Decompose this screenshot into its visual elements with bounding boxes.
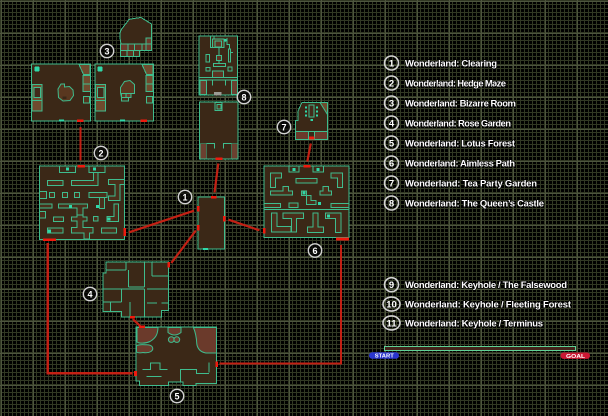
svg-text:9: 9 — [389, 280, 394, 291]
svg-text:Wonderland: Aimless Path: Wonderland: Aimless Path — [405, 158, 515, 169]
svg-text:Wonderland: Hedge Maze: Wonderland: Hedge Maze — [405, 78, 506, 89]
svg-text:3: 3 — [104, 47, 109, 57]
svg-text:Wonderland: Clearing: Wonderland: Clearing — [405, 58, 497, 69]
svg-text:Wonderland: Bizarre Room: Wonderland: Bizarre Room — [405, 98, 516, 109]
svg-text:START: START — [375, 354, 395, 360]
svg-text:8: 8 — [389, 198, 394, 209]
svg-text:1: 1 — [389, 58, 395, 69]
svg-text:6: 6 — [389, 158, 394, 169]
svg-text:Wonderland: Keyhole / Terminus: Wonderland: Keyhole / Terminus — [405, 318, 543, 329]
svg-text:Wonderland: Rose Garden: Wonderland: Rose Garden — [405, 118, 511, 129]
svg-text:Wonderland: Lotus Forest: Wonderland: Lotus Forest — [405, 138, 516, 149]
svg-text:Wonderland: The Queen’s Castle: Wonderland: The Queen’s Castle — [405, 198, 544, 209]
svg-text:1: 1 — [182, 193, 187, 203]
svg-text:Wonderland: Keyhole / The Fals: Wonderland: Keyhole / The Falsewood — [405, 280, 567, 291]
svg-text:3: 3 — [389, 98, 394, 109]
svg-text:2: 2 — [98, 149, 103, 159]
svg-text:5: 5 — [174, 392, 179, 402]
svg-text:4: 4 — [389, 118, 395, 129]
svg-text:2: 2 — [389, 78, 394, 89]
svg-text:7: 7 — [281, 123, 286, 133]
svg-text:10: 10 — [386, 300, 397, 311]
svg-text:GOAL: GOAL — [566, 354, 586, 360]
svg-text:11: 11 — [386, 318, 397, 329]
svg-text:5: 5 — [389, 138, 395, 149]
svg-text:4: 4 — [87, 290, 92, 300]
svg-text:Wonderland: Keyhole / Fleeting: Wonderland: Keyhole / Fleeting Forest — [405, 300, 572, 311]
svg-text:Wonderland: Tea Party Garden: Wonderland: Tea Party Garden — [405, 178, 537, 189]
svg-text:8: 8 — [241, 93, 246, 103]
svg-text:7: 7 — [389, 178, 394, 189]
svg-text:6: 6 — [312, 246, 317, 256]
